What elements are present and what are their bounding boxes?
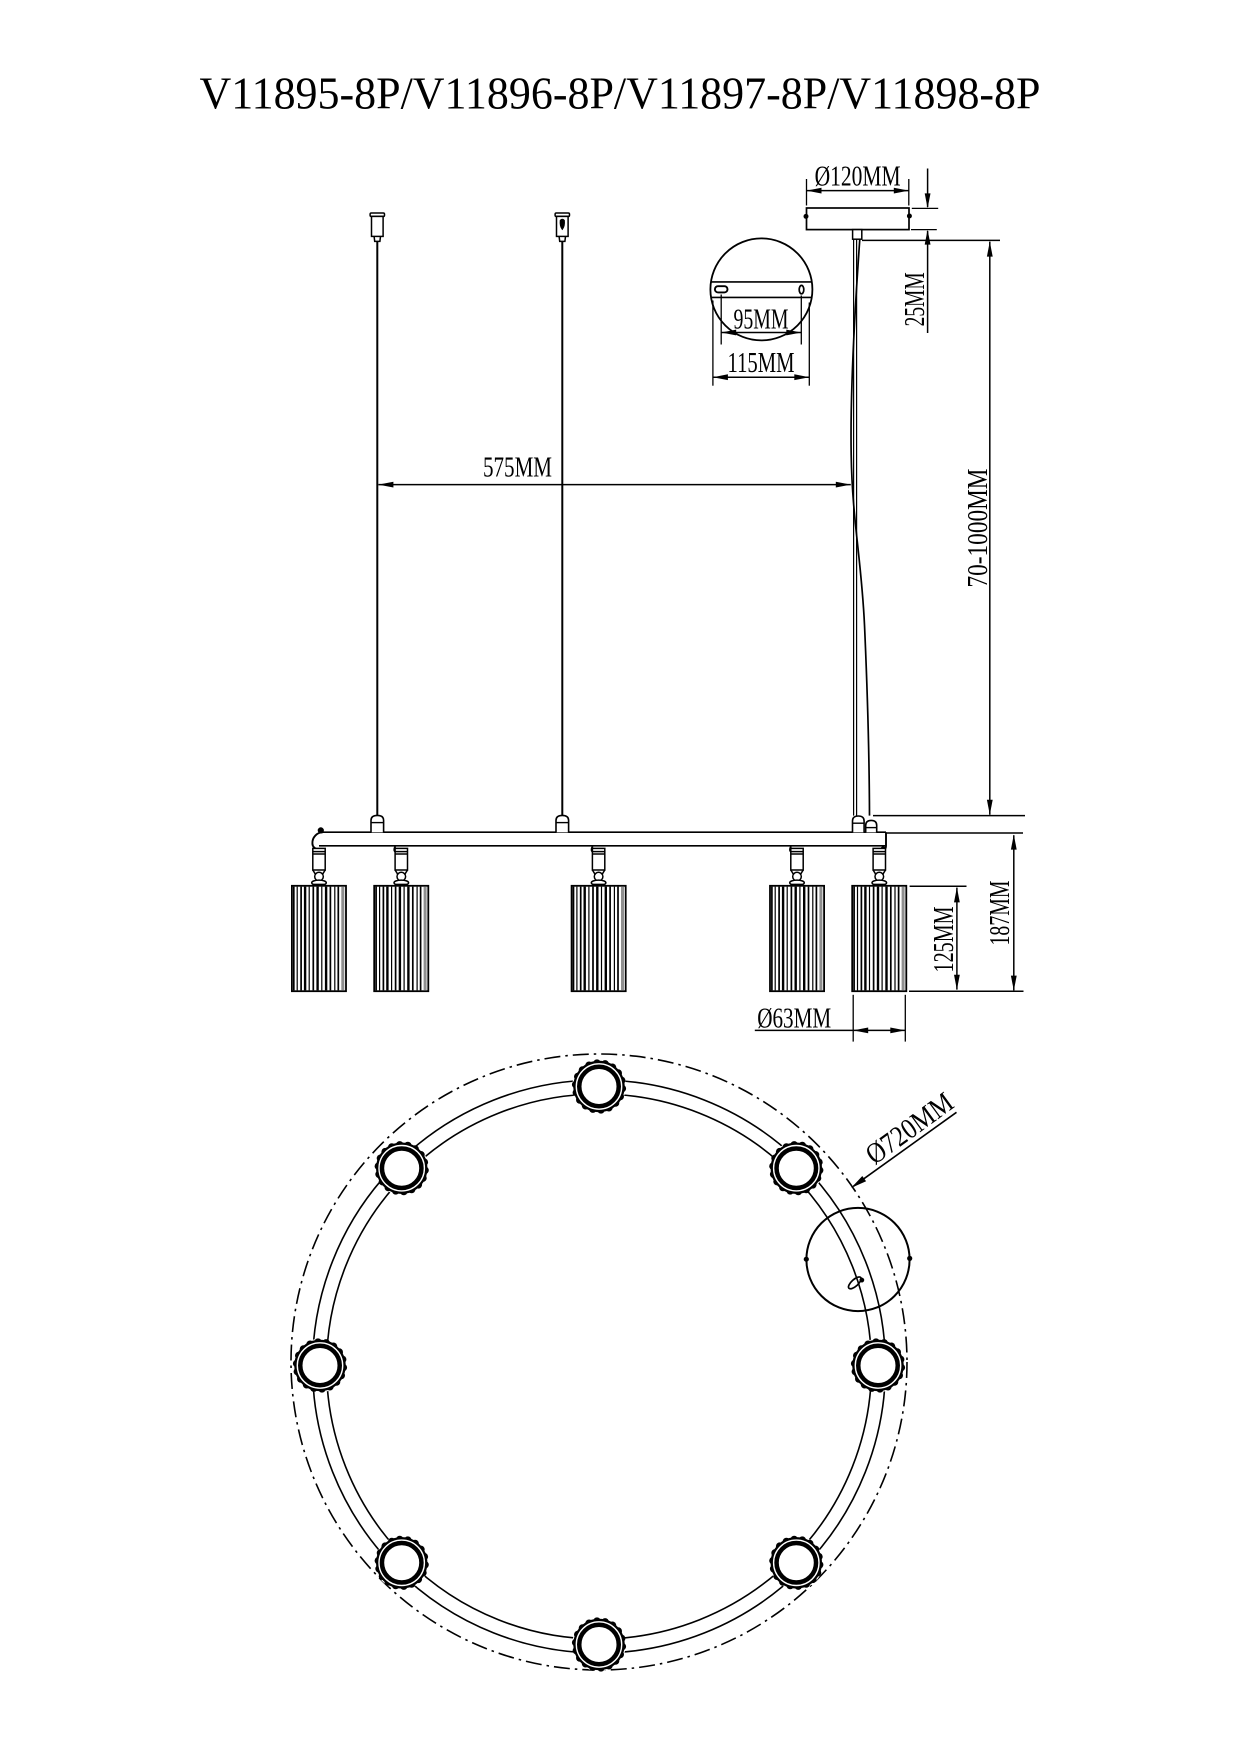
svg-text:575MM: 575MM (483, 452, 552, 484)
svg-text:115MM: 115MM (728, 347, 795, 379)
svg-text:25MM: 25MM (899, 272, 931, 326)
svg-text:95MM: 95MM (734, 304, 789, 336)
svg-text:Ø63MM: Ø63MM (757, 1003, 831, 1035)
svg-text:125MM: 125MM (928, 907, 960, 973)
svg-text:70-1000MM: 70-1000MM (962, 469, 994, 588)
svg-text:Ø120MM: Ø120MM (815, 160, 901, 192)
svg-text:V11895-8P/V11896-8P/V11897-8P/: V11895-8P/V11896-8P/V11897-8P/V11898-8P (200, 69, 1041, 119)
svg-text:187MM: 187MM (984, 881, 1016, 946)
svg-text:Ø720MM: Ø720MM (860, 1086, 960, 1171)
